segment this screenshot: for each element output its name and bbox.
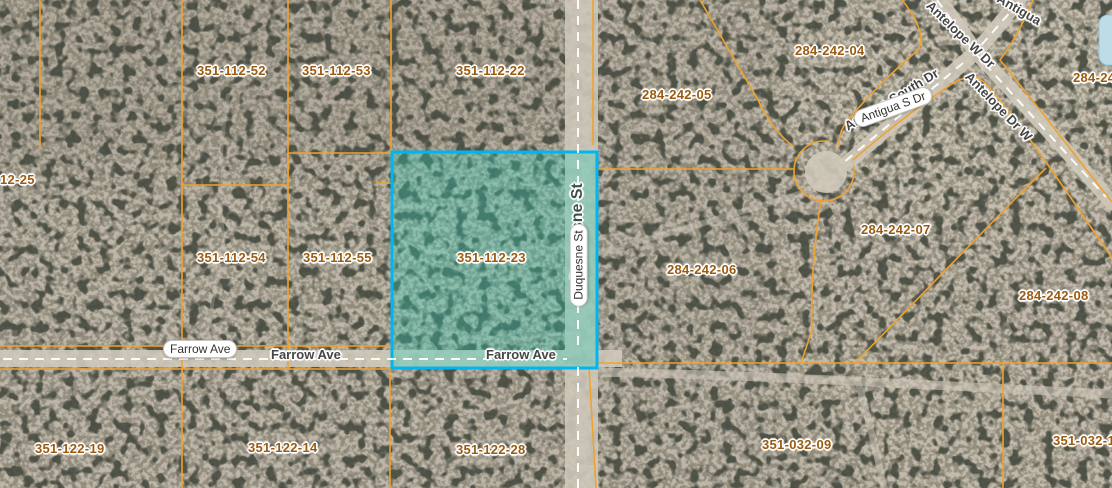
parcel-label-351-112-22[interactable]: 351-112-22 [456,63,525,78]
parcel-label-351-122-28[interactable]: 351-122-28 [456,442,526,457]
parcel-label-351-112-55[interactable]: 351-112-55 [303,250,372,265]
parcel-label-284-242-06[interactable]: 284-242-06 [667,262,737,277]
parcel-label-12-25-clipped[interactable]: 12-25 [0,172,35,187]
parcel-label-351-112-53[interactable]: 351-112-53 [302,63,371,78]
parcel-label-351-032-1-clipped[interactable]: 351-032-1 [1053,433,1112,448]
farrow-ave-label-east: Farrow Ave [486,347,556,362]
parcel-label-284-243-clipped[interactable]: 284-243 [1073,70,1112,85]
parcel-label-284-242-08[interactable]: 284-242-08 [1019,288,1089,303]
parcel-label-351-122-19[interactable]: 351-122-19 [35,441,105,456]
parcel-label-284-242-07[interactable]: 284-242-07 [861,222,931,237]
parcel-label-351-112-54[interactable]: 351-112-54 [197,250,266,265]
farrow-ave-label-west: Farrow Ave [271,347,341,362]
parcel-label-351-032-09[interactable]: 351-032-09 [762,437,832,452]
parcel-label-351-122-14[interactable]: 351-122-14 [248,440,318,455]
duquesne-st-pill-label: Duquesne St [570,223,588,306]
parcel-map-canvas[interactable]: 351-112-52 351-112-53 351-112-22 284-242… [0,0,1112,488]
parcel-label-351-112-23[interactable]: 351-112-23 [457,250,526,265]
parcel-label-351-112-52[interactable]: 351-112-52 [197,63,266,78]
parcel-label-284-242-05[interactable]: 284-242-05 [642,87,712,102]
parcel-label-284-242-04[interactable]: 284-242-04 [795,43,865,58]
map-render-layer [0,0,1112,488]
farrow-ave-pill-label: Farrow Ave [163,340,237,358]
cul-de-sac-bulb [805,151,847,193]
edge-highlight-fragment [1099,15,1112,65]
